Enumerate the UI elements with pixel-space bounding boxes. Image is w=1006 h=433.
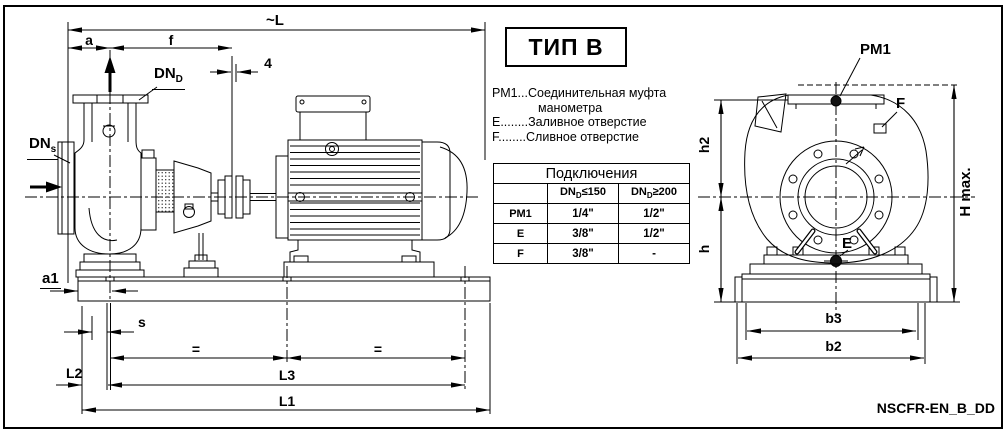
pm1-dn150-value: 1/4" [548, 204, 619, 224]
table-corner-cell [494, 184, 548, 204]
dim-label-h2: h2 [696, 115, 712, 175]
e-dn150-value: 3/8" [548, 224, 619, 244]
e-dn200-value: 1/2" [619, 224, 690, 244]
dim-label-l3: L3 [270, 367, 304, 383]
dim-label-s: s [138, 314, 146, 330]
front-centerlines [698, 82, 975, 318]
electric-motor [276, 96, 467, 277]
dim-label-gap4: 4 [258, 55, 278, 71]
drawing-code: NSCFR-EN_B_DD [855, 400, 995, 416]
dim-label-b3: b3 [806, 310, 861, 326]
row-label-pm1: РМ1 [494, 204, 548, 224]
dim-label-equal-left: = [186, 341, 206, 357]
drawing-canvas: ~L a f 4 DND DNs a1 s = = L2 L3 L1 PM1 F… [0, 0, 1006, 433]
legend-line-pm1-cont: манометра [492, 101, 666, 116]
type-title-box: ТИП B [505, 27, 627, 67]
table-row: Е 3/8" 1/2" [494, 224, 690, 244]
side-view [25, 22, 490, 414]
legend-line-pm1: РМ1...Соединительная муфта [492, 86, 666, 101]
row-label-e: Е [494, 224, 548, 244]
side-centerlines [25, 50, 478, 390]
table-row: РМ1 1/4" 1/2" [494, 204, 690, 224]
legend-block: РМ1...Соединительная муфта манометра Е..… [492, 86, 666, 144]
dim-label-f: f [159, 32, 183, 48]
side-extension-lines [68, 22, 490, 414]
dim-label-a1: a1 [40, 271, 61, 289]
fill-e-label: E [842, 236, 852, 252]
suction-flow-arrow-icon [30, 182, 62, 193]
row-label-f: F [494, 244, 548, 264]
table-col-header-dn150: DND≤150 [548, 184, 619, 204]
connections-table-title: Подключения [494, 164, 690, 184]
pump-casing [58, 95, 148, 277]
bearing-frame [141, 150, 218, 277]
dim-label-h-max: H max. [958, 152, 974, 232]
f-dn150-value: 3/8" [548, 244, 619, 264]
rotation-arrow-icon [846, 147, 864, 164]
dim-label-h: h [696, 219, 712, 279]
pm1-leader-line [840, 58, 860, 96]
drain-f-label: F [896, 96, 905, 112]
pm1-label: PM1 [860, 42, 891, 58]
discharge-nozzle-label: DND [152, 66, 185, 90]
dim-label-b2: b2 [806, 338, 861, 354]
dim-label-a: a [77, 32, 101, 48]
suction-nozzle-label: DNs [27, 136, 58, 160]
f-dn200-value: - [619, 244, 690, 264]
discharge-flow-arrow-icon [105, 56, 116, 92]
dim-label-l2: L2 [66, 365, 82, 381]
legend-line-f: F........Сливное отверстие [492, 130, 666, 145]
baseplate [78, 277, 490, 301]
pm1-plug [831, 96, 841, 106]
dim-label-overall-length: ~L [245, 13, 305, 29]
type-title: ТИП B [528, 34, 603, 61]
side-dimension-lines [50, 30, 490, 410]
table-row: F 3/8" - [494, 244, 690, 264]
dim-label-l1: L1 [270, 393, 304, 409]
table-col-header-dn200: DND≥200 [619, 184, 690, 204]
dim-label-equal-right: = [368, 341, 388, 357]
f-leader-line [882, 112, 897, 127]
pm1-dn200-value: 1/2" [619, 204, 690, 224]
connections-table: Подключения DND≤150 DND≥200 РМ1 1/4" 1/2… [493, 163, 690, 264]
legend-line-e: Е........Заливное отверстие [492, 115, 666, 130]
